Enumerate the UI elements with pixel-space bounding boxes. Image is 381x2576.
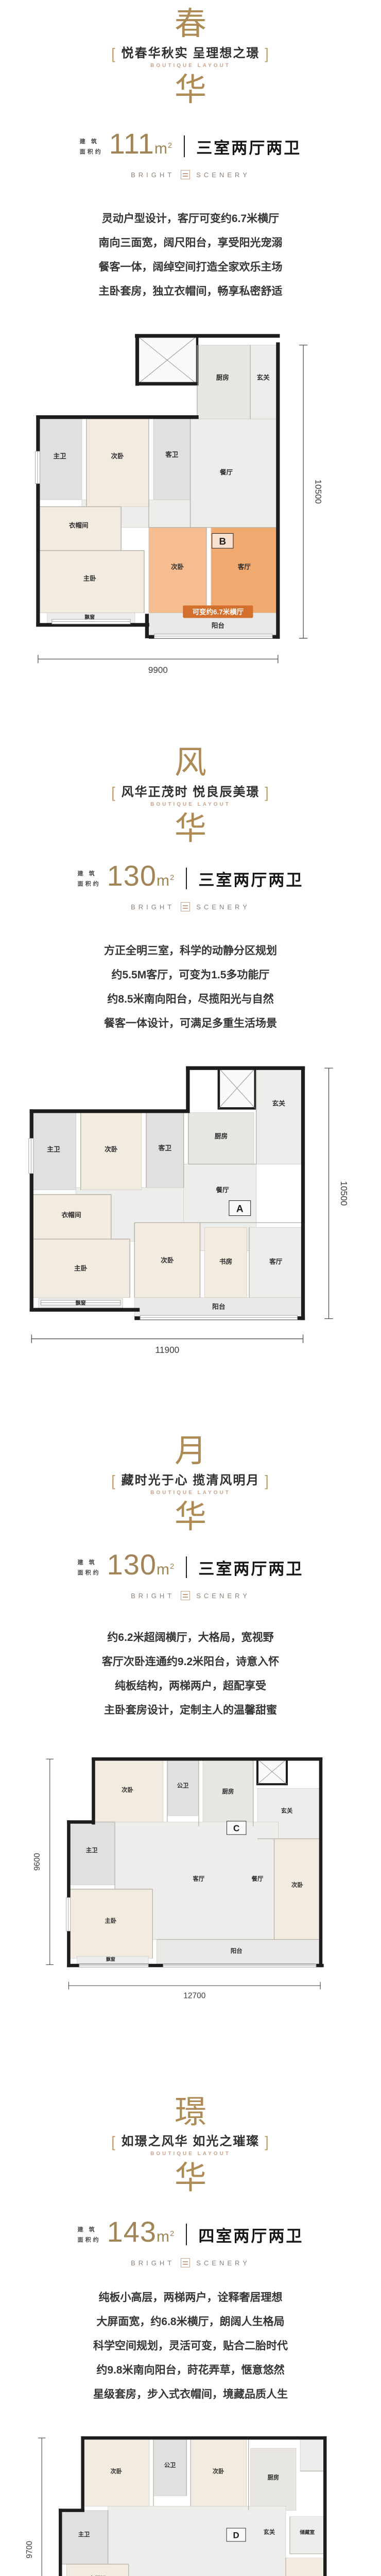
area-label: 建 筑 面积约: [78, 2225, 101, 2244]
svg-text:飘窗: 飘窗: [85, 614, 95, 620]
hero-character-bottom: 华: [175, 74, 206, 106]
svg-text:C: C: [233, 1823, 239, 1833]
svg-text:餐厅: 餐厅: [215, 1186, 229, 1194]
svg-text:次卧: 次卧: [105, 1145, 118, 1153]
layout-type: 三室两厅两卫: [196, 135, 301, 158]
section-fenghua: 风 [ 风华正茂时 悦良辰美璟 ] BOUTIQUE LAYOUT 华 建 筑 …: [0, 747, 381, 1368]
boutique-layout-label: BOUTIQUE LAYOUT: [150, 801, 231, 808]
svg-text:储藏室: 储藏室: [300, 2529, 315, 2535]
svg-text:客厅: 客厅: [269, 1258, 283, 1265]
brand-left: BRIGHT: [131, 171, 175, 179]
boutique-layout-label: BOUTIQUE LAYOUT: [150, 62, 231, 70]
description-line: 纯板结构，两梯两户，超配享受: [0, 1674, 381, 1698]
description: 纯板小高层，两梯两户，诠释奢居理想 大屏面宽，约6.8米横厅，朗阔人生格局 科学…: [0, 2285, 381, 2406]
description-line: 南向三面宽，阔尺阳台，享受阳光宠溺: [0, 231, 381, 255]
hero-character-bottom: 华: [175, 812, 206, 844]
brand-left: BRIGHT: [131, 2259, 175, 2267]
area-value: 111m2: [109, 128, 172, 164]
spec-divider: [186, 2224, 187, 2245]
svg-text:次卧: 次卧: [291, 1882, 303, 1889]
svg-text:客厅: 客厅: [193, 1875, 205, 1883]
spec-divider: [184, 135, 185, 157]
svg-text:次卧: 次卧: [171, 563, 184, 570]
svg-text:公卫: 公卫: [177, 1783, 189, 1789]
spec-divider: [186, 868, 187, 889]
svg-text:玄关: 玄关: [272, 1099, 285, 1107]
poster-page: 春 [ 悦春华秋实 呈理想之璟 ] BOUTIQUE LAYOUT 华 建 筑 …: [0, 0, 381, 2576]
svg-text:主卫: 主卫: [78, 2531, 90, 2538]
floor-plan-d: 次卧公卫次卧厨房主卫衣帽间主卧玄关储藏室客厅餐厅次卧飘窗阳台D970014100: [19, 2430, 362, 2576]
spec-divider: [186, 1556, 187, 1578]
layout-type: 三室两厅两卫: [198, 1556, 303, 1579]
description-line: 灵动户型设计，客厅可变约6.7米横厅: [0, 207, 381, 231]
description-line: 餐客一体，阔绰空间打造全家欢乐主场: [0, 255, 381, 279]
brand-row: BRIGHT SCENERY: [0, 1590, 381, 1601]
description-line: 科学空间规划，灵活可变，贴合二胎时代: [0, 2334, 381, 2358]
svg-text:次卧: 次卧: [122, 1786, 133, 1793]
tagline-text: 悦春华秋实 呈理想之璟: [122, 46, 260, 61]
svg-text:客厅: 客厅: [238, 563, 251, 570]
description-line: 约8.5米南向阳台，尽揽阳光与自然: [0, 987, 381, 1011]
spec-row: 建 筑 面积约 130m2 三室两厅两卫: [0, 862, 381, 894]
hero-character-top: 风: [175, 747, 206, 778]
bracket-left-icon: [: [111, 1472, 116, 1490]
floor-plan-wrap: 厨房玄关主卫次卧客卫餐厅衣帽间主卧次卧客厅飘窗阳台B可变约6.7米横厅10500…: [0, 327, 381, 682]
svg-text:11900: 11900: [155, 1345, 179, 1355]
svg-text:B: B: [219, 536, 227, 547]
svg-text:客卫: 客卫: [166, 451, 179, 459]
brand-left: BRIGHT: [131, 903, 175, 911]
brand-left: BRIGHT: [131, 1592, 175, 1600]
section-header: 风 [ 风华正茂时 悦良辰美璟 ] BOUTIQUE LAYOUT 华: [0, 747, 381, 844]
svg-text:D: D: [233, 2530, 239, 2540]
description-line: 约6.2米超阔横厅，大格局，宽视野: [0, 1625, 381, 1650]
description-line: 客厅次卧连通约9.2米阳台，诗意入怀: [0, 1650, 381, 1674]
description-line: 大屏面宽，约6.8米横厅，朗阔人生格局: [0, 2310, 381, 2334]
jing-seal-icon: [181, 2258, 190, 2267]
svg-text:公卫: 公卫: [164, 2462, 176, 2468]
brand-right: SCENERY: [196, 171, 250, 179]
svg-text:次卧: 次卧: [161, 1256, 174, 1264]
svg-text:飘窗: 飘窗: [106, 1956, 115, 1962]
svg-text:10500: 10500: [314, 480, 323, 504]
svg-text:衣帽间: 衣帽间: [69, 521, 89, 529]
bracket-left-icon: [: [111, 45, 116, 63]
description-line: 纯板小高层，两梯两户，诠释奢居理想: [0, 2285, 381, 2310]
floor-plan-wrap: 玄关厨房主卫次卧客卫餐厅衣帽间主卧次卧书房客厅飘窗阳台A1050011900: [0, 1059, 381, 1368]
area-label: 建 筑 面积约: [78, 869, 101, 888]
svg-text:餐厅: 餐厅: [251, 1875, 264, 1883]
section-yuehua: 月 [ 藏时光于心 揽清风明月 ] BOUTIQUE LAYOUT 华 建 筑 …: [0, 1435, 381, 2011]
floor-plan-c: 次卧公卫厨房玄关主卫客厅餐厅次卧主卧飘窗阳台C960012700: [27, 1751, 354, 2011]
svg-text:12700: 12700: [184, 1992, 206, 2001]
bracket-left-icon: [: [111, 784, 116, 802]
description: 灵动户型设计，客厅可变约6.7米横厅 南向三面宽，阔尺阳台，享受阳光宠溺 餐客一…: [0, 207, 381, 303]
description-line: 星级套房，步入式衣帽间，境藏品质人生: [0, 2382, 381, 2406]
jing-seal-icon: [181, 1591, 190, 1600]
bracket-right-icon: ]: [265, 45, 269, 63]
floor-plan-wrap: 次卧公卫厨房玄关主卫客厅餐厅次卧主卧飘窗阳台C960012700: [0, 1751, 381, 2011]
svg-text:飘窗: 飘窗: [75, 1299, 85, 1306]
description: 约6.2米超阔横厅，大格局，宽视野 客厅次卧连通约9.2米阳台，诗意入怀 纯板结…: [0, 1625, 381, 1722]
layout-type: 三室两厅两卫: [198, 867, 303, 890]
section-header: 月 [ 藏时光于心 揽清风明月 ] BOUTIQUE LAYOUT 华: [0, 1435, 381, 1533]
svg-text:次卧: 次卧: [111, 452, 125, 460]
hero-character-top: 春: [175, 8, 206, 40]
spec-row: 建 筑 面积约 143m2 四室两厅两卫: [0, 2218, 381, 2250]
svg-text:主卫: 主卫: [54, 452, 67, 460]
brand-right: SCENERY: [196, 903, 250, 911]
svg-text:A: A: [236, 1204, 244, 1214]
svg-text:餐厅: 餐厅: [220, 468, 233, 476]
svg-text:厨房: 厨房: [214, 1132, 227, 1140]
svg-text:主卫: 主卫: [47, 1145, 60, 1153]
hero-character-top: 璟: [175, 2096, 206, 2128]
tagline: [ 藏时光于心 揽清风明月 ]: [111, 1473, 269, 1488]
description-line: 约5.5M客厅，可变为1.5多功能厅: [0, 963, 381, 987]
svg-text:主卧: 主卧: [83, 574, 97, 582]
section-header: 春 [ 悦春华秋实 呈理想之璟 ] BOUTIQUE LAYOUT 华: [0, 8, 381, 106]
tagline-text: 风华正茂时 悦良辰美璟: [122, 785, 260, 800]
svg-text:阳台: 阳台: [212, 1302, 226, 1310]
layout-type: 四室两厅两卫: [198, 2223, 303, 2246]
section-chunhua: 春 [ 悦春华秋实 呈理想之璟 ] BOUTIQUE LAYOUT 华 建 筑 …: [0, 8, 381, 682]
brand-right: SCENERY: [196, 1592, 250, 1600]
jing-seal-icon: [181, 902, 190, 911]
spec-row: 建 筑 面积约 130m2 三室两厅两卫: [0, 1551, 381, 1583]
brand-row: BRIGHT SCENERY: [0, 170, 381, 180]
brand-row: BRIGHT SCENERY: [0, 2258, 381, 2268]
svg-text:阳台: 阳台: [231, 1947, 243, 1955]
svg-text:次卧: 次卧: [110, 2467, 122, 2475]
svg-text:厨房: 厨房: [267, 2473, 279, 2481]
area-value: 143m2: [107, 2216, 175, 2252]
tagline: [ 风华正茂时 悦良辰美璟 ]: [111, 785, 269, 800]
svg-text:衣帽间: 衣帽间: [61, 1211, 81, 1218]
description-line: 方正全明三室，科学的动静分区规划: [0, 939, 381, 963]
tagline-text: 如璟之风华 如光之璀璨: [122, 2134, 260, 2149]
svg-text:主卫: 主卫: [86, 1846, 98, 1854]
svg-text:可变约6.7米横厅: 可变约6.7米横厅: [193, 608, 244, 616]
description-line: 约9.8米南向阳台，莳花弄草，惬意悠然: [0, 2358, 381, 2382]
area-value: 130m2: [107, 860, 175, 896]
area-value: 130m2: [107, 1549, 175, 1585]
area-label: 建 筑 面积约: [80, 137, 103, 156]
svg-text:阳台: 阳台: [212, 621, 224, 629]
svg-text:主卧: 主卧: [74, 1264, 88, 1272]
brand-right: SCENERY: [196, 2259, 250, 2267]
svg-text:书房: 书房: [219, 1258, 232, 1265]
tagline: [ 悦春华秋实 呈理想之璟 ]: [111, 46, 269, 61]
svg-text:主卧: 主卧: [105, 1917, 117, 1924]
description: 方正全明三室，科学的动静分区规划 约5.5M客厅，可变为1.5多功能厅 约8.5…: [0, 939, 381, 1036]
bracket-right-icon: ]: [265, 2133, 269, 2151]
svg-text:次卧: 次卧: [213, 2467, 224, 2475]
floor-plan-b: 厨房玄关主卫次卧客卫餐厅衣帽间主卧次卧客厅飘窗阳台B可变约6.7米横厅10500…: [24, 327, 356, 682]
brand-row: BRIGHT SCENERY: [0, 902, 381, 912]
svg-text:厨房: 厨房: [222, 1788, 234, 1795]
bracket-right-icon: ]: [265, 1472, 269, 1490]
svg-text:玄关: 玄关: [263, 2528, 275, 2535]
section-jinghua: 璟 [ 如璟之风华 如光之璀璨 ] BOUTIQUE LAYOUT 华 建 筑 …: [0, 2096, 381, 2576]
description-line: 主卧套房设计，定制主人的温馨甜蜜: [0, 1698, 381, 1722]
jing-seal-icon: [181, 170, 190, 179]
floor-plan-a: 玄关厨房主卫次卧客卫餐厅衣帽间主卧次卧书房客厅飘窗阳台A1050011900: [18, 1059, 364, 1368]
section-header: 璟 [ 如璟之风华 如光之璀璨 ] BOUTIQUE LAYOUT 华: [0, 2096, 381, 2194]
hero-character-top: 月: [175, 1435, 206, 1467]
floor-plan-wrap: 次卧公卫次卧厨房主卫衣帽间主卧玄关储藏室客厅餐厅次卧飘窗阳台D970014100: [0, 2430, 381, 2576]
description-line: 餐客一体设计，可满足多重生活场景: [0, 1011, 381, 1036]
svg-text:玄关: 玄关: [281, 1807, 293, 1815]
tagline: [ 如璟之风华 如光之璀璨 ]: [111, 2134, 269, 2149]
description-line: 主卧套房，独立衣帽间，畅享私密舒适: [0, 279, 381, 303]
spec-row: 建 筑 面积约 111m2 三室两厅两卫: [0, 130, 381, 162]
area-label: 建 筑 面积约: [78, 1558, 101, 1577]
hero-character-bottom: 华: [175, 2162, 206, 2194]
svg-text:10500: 10500: [339, 1181, 349, 1206]
svg-text:厨房: 厨房: [216, 374, 229, 381]
svg-text:9600: 9600: [33, 1853, 42, 1871]
tagline-text: 藏时光于心 揽清风明月: [122, 1473, 260, 1488]
svg-text:客卫: 客卫: [158, 1144, 171, 1151]
svg-text:9900: 9900: [148, 665, 168, 675]
bracket-left-icon: [: [111, 2133, 116, 2151]
svg-text:玄关: 玄关: [257, 374, 270, 381]
boutique-layout-label: BOUTIQUE LAYOUT: [150, 1489, 231, 1497]
svg-text:9700: 9700: [25, 2541, 34, 2558]
boutique-layout-label: BOUTIQUE LAYOUT: [150, 2150, 231, 2158]
hero-character-bottom: 华: [175, 1501, 206, 1533]
bracket-right-icon: ]: [265, 784, 269, 802]
